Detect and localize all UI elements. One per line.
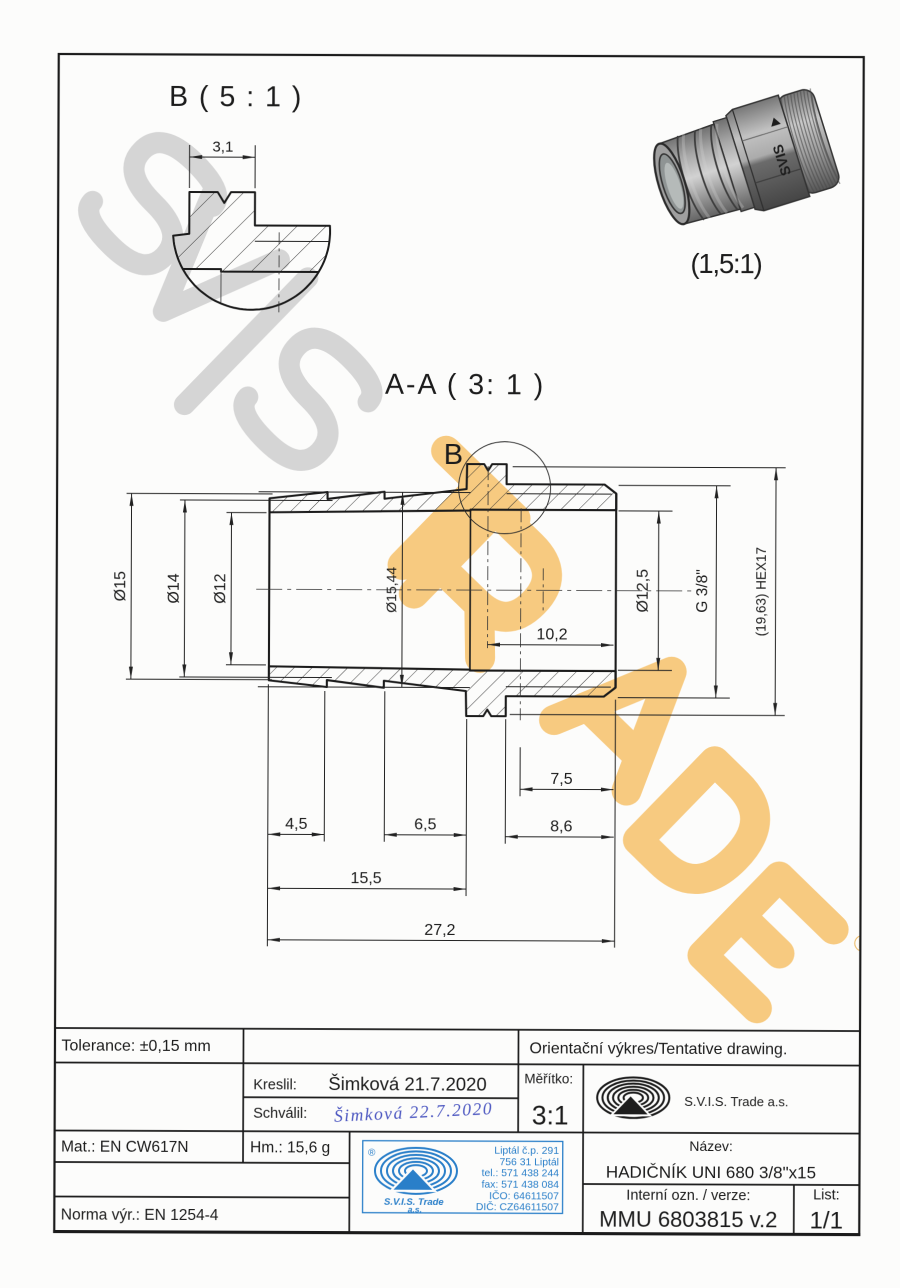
svg-text:B: B bbox=[444, 439, 463, 471]
svg-text:3:1: 3:1 bbox=[532, 1100, 569, 1130]
svg-text:10,2: 10,2 bbox=[536, 626, 567, 643]
svg-text:IČO: 64611507: IČO: 64611507 bbox=[489, 1189, 559, 1202]
svg-text:6,5: 6,5 bbox=[414, 816, 436, 833]
svg-text:Orientační výkres/Tentative dr: Orientační výkres/Tentative drawing. bbox=[529, 1040, 787, 1058]
svg-text:Kreslil:: Kreslil: bbox=[253, 1077, 297, 1093]
svg-text:tel.: 571 438 244: tel.: 571 438 244 bbox=[482, 1168, 560, 1179]
svg-text:Název:: Název: bbox=[689, 1138, 733, 1154]
svg-text:Interní ozn. / verze:: Interní ozn. / verze: bbox=[626, 1188, 750, 1204]
svg-text:G 3/8": G 3/8" bbox=[694, 569, 711, 612]
svg-text:Ø15,44: Ø15,44 bbox=[383, 567, 399, 613]
svg-text:A-A ( 3: 1 ): A-A ( 3: 1 ) bbox=[385, 369, 545, 402]
svg-text:Schválil:: Schválil: bbox=[253, 1106, 307, 1122]
svg-text:(1,5:1): (1,5:1) bbox=[690, 248, 761, 279]
svg-text:B ( 5 : 1 ): B ( 5 : 1 ) bbox=[169, 81, 303, 114]
svg-text:Ø15: Ø15 bbox=[112, 571, 129, 601]
svg-text:Mat.: EN CW617N: Mat.: EN CW617N bbox=[61, 1139, 189, 1156]
svg-text:DIČ: CZ64611507: DIČ: CZ64611507 bbox=[476, 1200, 559, 1213]
svg-text:4,5: 4,5 bbox=[285, 816, 307, 833]
svg-text:Ø12: Ø12 bbox=[212, 573, 229, 603]
svg-text:®: ® bbox=[368, 1148, 376, 1159]
svg-text:8,6: 8,6 bbox=[550, 818, 572, 835]
svg-text:Ø14: Ø14 bbox=[166, 573, 183, 603]
svg-text:Šimková 22.7.2020: Šimková 22.7.2020 bbox=[333, 1098, 493, 1126]
svg-text:MMU 6803815 v.2: MMU 6803815 v.2 bbox=[599, 1207, 777, 1233]
svg-text:Ø12,5: Ø12,5 bbox=[635, 569, 652, 613]
svg-text:15,5: 15,5 bbox=[350, 870, 381, 887]
svg-text:1/1: 1/1 bbox=[810, 1207, 843, 1234]
svg-text:3,1: 3,1 bbox=[212, 139, 233, 156]
svg-text:S.V.I.S. Trade a.s.: S.V.I.S. Trade a.s. bbox=[684, 1094, 788, 1109]
svg-text:HADIČNÍK UNI 680 3/8"x15: HADIČNÍK UNI 680 3/8"x15 bbox=[606, 1163, 816, 1183]
svg-text:756 31 Liptál: 756 31 Liptál bbox=[499, 1157, 559, 1168]
svg-text:Hm.: 15,6 g: Hm.: 15,6 g bbox=[250, 1139, 330, 1156]
svg-text:7,5: 7,5 bbox=[550, 771, 572, 788]
svg-text:Šimková 21.7.2020: Šimková 21.7.2020 bbox=[328, 1073, 486, 1095]
svg-text:27,2: 27,2 bbox=[424, 922, 455, 939]
svg-text:Liptál č.p. 291: Liptál č.p. 291 bbox=[494, 1146, 559, 1157]
svg-text:Tolerance: ±0,15 mm: Tolerance: ±0,15 mm bbox=[61, 1038, 210, 1056]
svg-text:(19,63) HEX17: (19,63) HEX17 bbox=[754, 547, 769, 636]
svg-text:fax: 571 438 084: fax: 571 438 084 bbox=[481, 1180, 559, 1191]
svg-text:Měřítko:: Měřítko: bbox=[524, 1071, 573, 1086]
svg-text:a.s.: a.s. bbox=[408, 1204, 422, 1214]
svg-text:®: ® bbox=[854, 931, 871, 957]
svg-text:List:: List: bbox=[813, 1187, 840, 1203]
svg-text:Norma výr.: EN 1254-4: Norma výr.: EN 1254-4 bbox=[61, 1207, 219, 1225]
